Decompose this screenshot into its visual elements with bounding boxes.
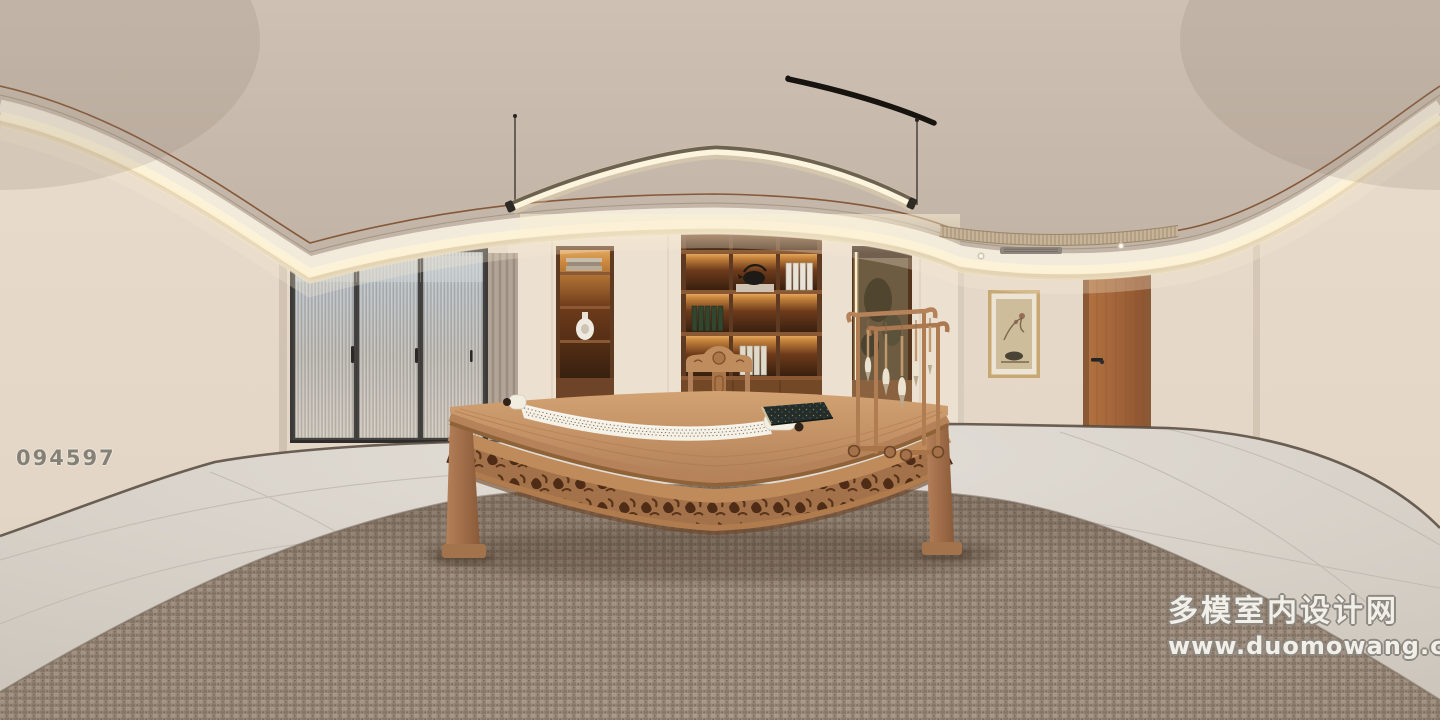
desk-shadow [422,528,1002,580]
brand-name-cn: 多模室内设计网 [1168,596,1408,628]
brand-url: www.duomowang.com [1168,634,1408,659]
wall-painting [988,290,1040,378]
book-stack [566,258,602,271]
scene-id-watermark: 094597 [16,446,116,470]
niche-shelf [556,246,614,404]
panorama-study-room: 094597 多模室内设计网 www.duomowang.com [0,0,1440,720]
green-books [692,306,723,331]
ac-vent [1000,247,1062,254]
brand-watermark: 多模室内设计网 www.duomowang.com [1168,596,1408,659]
